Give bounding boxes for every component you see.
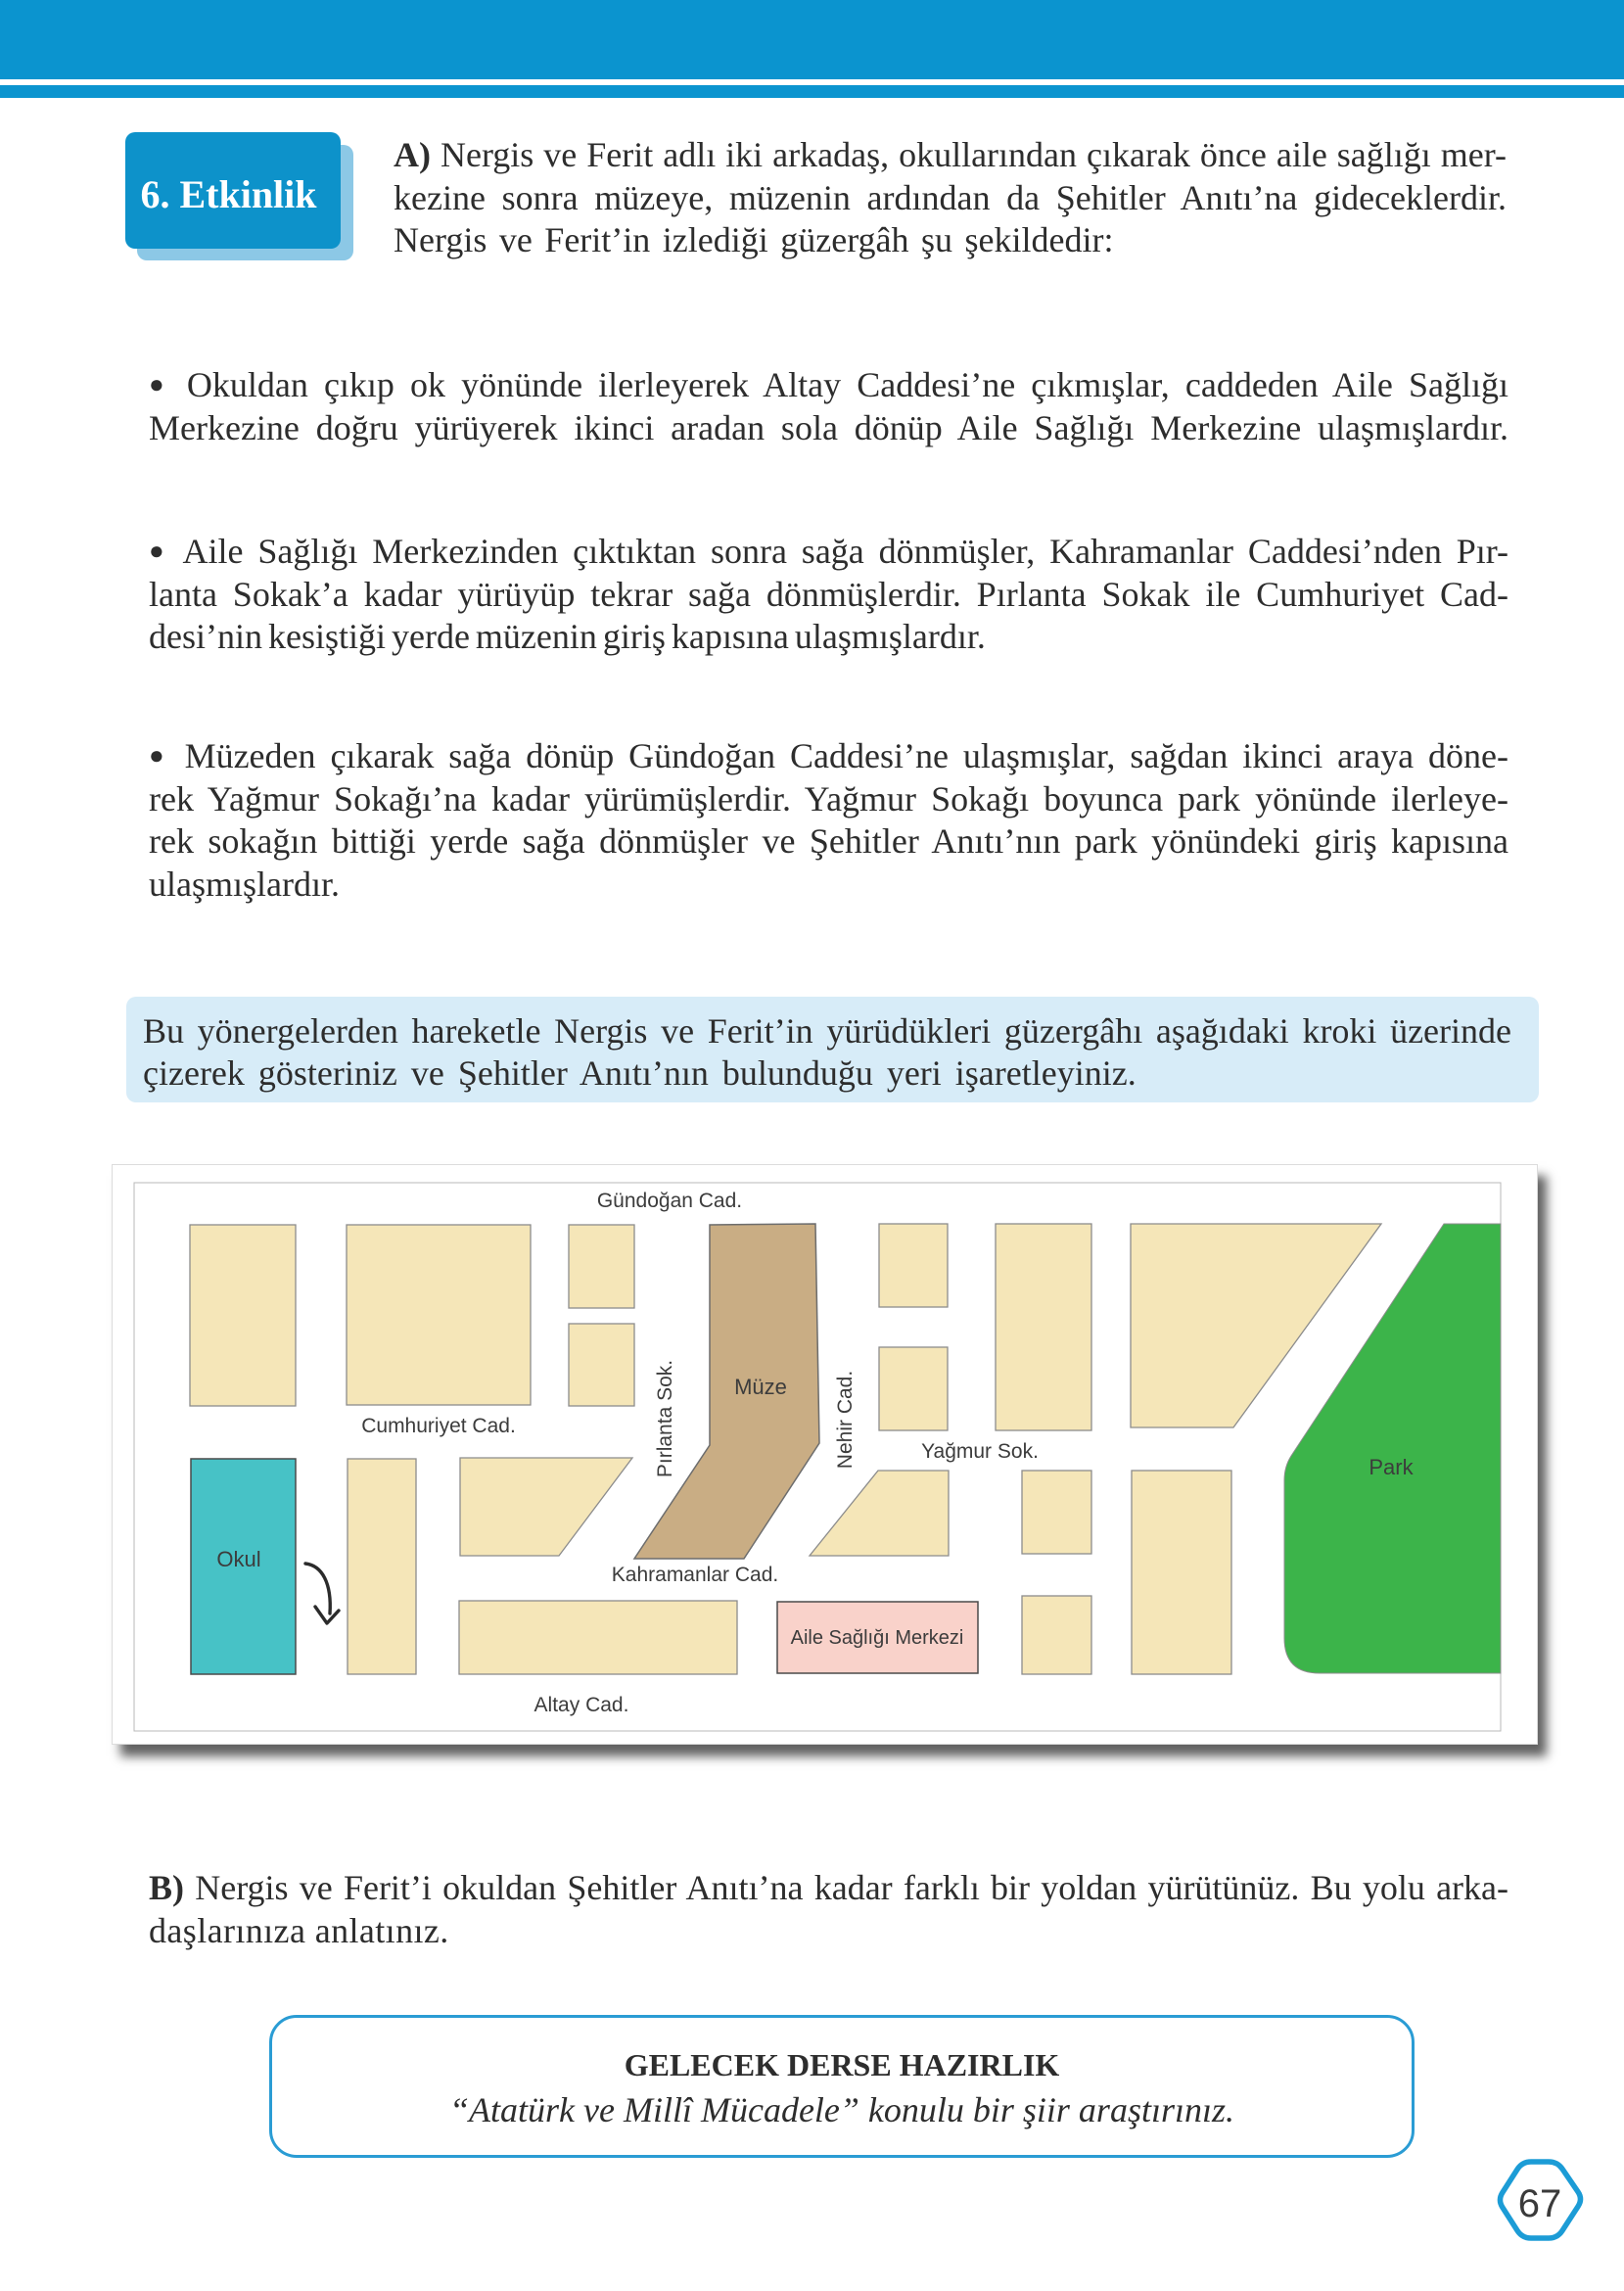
svg-text:Okul: Okul	[216, 1547, 260, 1571]
svg-text:Pırlanta Sok.: Pırlanta Sok.	[654, 1360, 676, 1477]
svg-text:Altay Cad.: Altay Cad.	[534, 1694, 629, 1716]
svg-text:Müze: Müze	[734, 1375, 787, 1399]
svg-text:Cumhuriyet Cad.: Cumhuriyet Cad.	[361, 1415, 516, 1437]
svg-text:Aile Sağlığı Merkezi: Aile Sağlığı Merkezi	[791, 1627, 964, 1649]
svg-text:Gündoğan Cad.: Gündoğan Cad.	[597, 1190, 742, 1212]
svg-text:Yağmur Sok.: Yağmur Sok.	[921, 1440, 1039, 1463]
svg-text:67: 67	[1518, 2182, 1562, 2225]
svg-text:Park: Park	[1369, 1455, 1414, 1479]
svg-text:Nehir Cad.: Nehir Cad.	[834, 1371, 857, 1469]
svg-text:Kahramanlar Cad.: Kahramanlar Cad.	[612, 1564, 778, 1586]
